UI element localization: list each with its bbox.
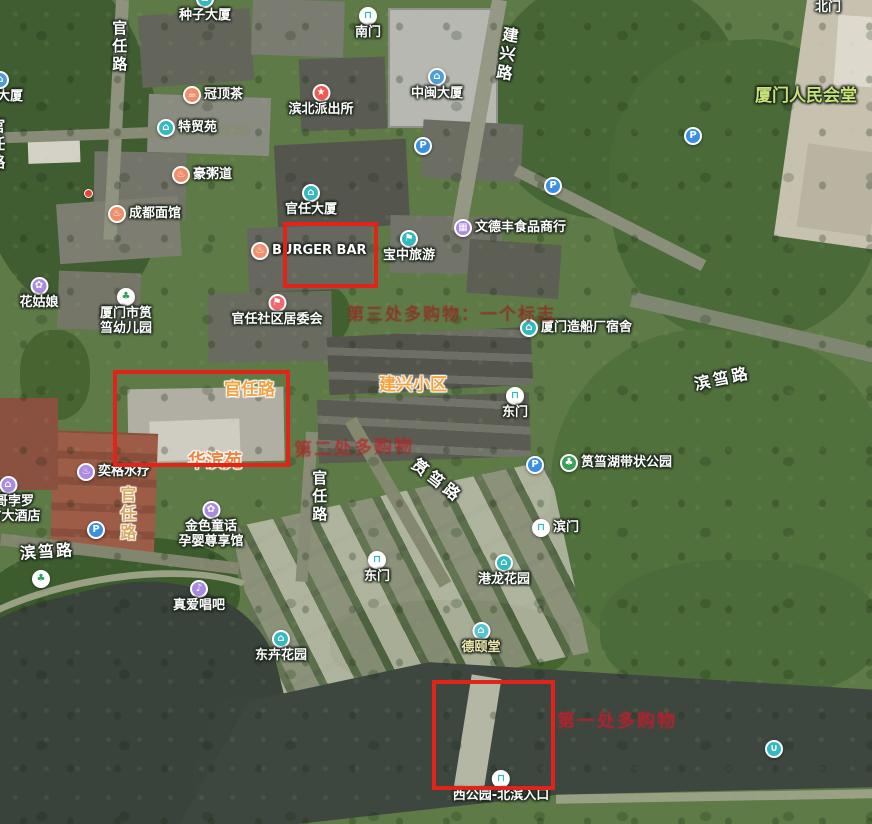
building-icon: ⌂ (157, 119, 175, 137)
poi-temao-yuan[interactable]: ⌂特贸苑 (157, 119, 217, 137)
satellite-map[interactable]: ⌂种子大厦⊓南门北门大厦⌂⌂中闽大厦☕冠顶茶★滨北派出所⌂特贸苑♨豪粥道♨成都面… (0, 0, 872, 824)
small-red-marker[interactable] (84, 189, 93, 198)
label-bindang-road-east[interactable]: 滨筜路 (693, 364, 753, 394)
label-guanren-road-vertical-south[interactable]: 官任路 (310, 470, 327, 524)
poi-label: 官任大厦 (285, 203, 337, 218)
poi-baozhong-travel[interactable]: ⚑宝中旅游 (383, 230, 435, 264)
store-icon: ▦ (454, 219, 472, 237)
building-icon: ⌂ (302, 184, 320, 202)
hotel-icon: ⌂ (0, 476, 17, 494)
label-guanren-road[interactable]: 官任路 (224, 381, 275, 401)
poi-label: 滨北派出所 (288, 103, 353, 118)
poi-label: 厦门市筼 筜幼儿园 (100, 307, 152, 337)
label-bindang-road-southwest[interactable]: 滨筜路 (19, 541, 74, 563)
poi-marco-polo-hotel[interactable]: ⌂马哥孛罗 东方大酒店 (0, 476, 41, 525)
poi-parking-3[interactable]: P (684, 127, 702, 145)
poi-shipyard-dormitory[interactable]: ⌂厦门造船厂宿舍 (520, 319, 632, 337)
poi-donghui-garden[interactable]: ⌂东卉花园 (255, 630, 307, 664)
poi-guandingcha-tea[interactable]: ☕冠顶茶 (183, 86, 243, 104)
poi-label: 东门 (364, 570, 390, 585)
music-icon: ♪ (190, 580, 208, 598)
poi-label: 特贸苑 (178, 121, 217, 136)
parking-icon: P (87, 521, 105, 539)
poi-label: 港龙花园 (478, 573, 530, 588)
parking-icon: P (544, 177, 562, 195)
poi-label: 滨筜路 (19, 541, 74, 563)
poi-label: 种子大厦 (179, 9, 231, 24)
poi-zhongzi-tower[interactable]: ⌂种子大厦 (179, 0, 231, 24)
poi-label: 筼筜湖带状公园 (581, 456, 672, 471)
poi-label: 宝中旅游 (383, 249, 435, 264)
building-icon: ⌂ (520, 319, 538, 337)
poi-zhenai-ktv[interactable]: ♪真爱唱吧 (173, 580, 225, 614)
poi-zhongmin-tower[interactable]: ⌂中闽大厦 (411, 68, 463, 102)
poi-chengdu-noodles[interactable]: ♨成都面馆 (108, 205, 181, 223)
poi-golden-fairytale-baby-store[interactable]: ✿金色童话 孕婴尊享馆 (178, 501, 243, 550)
poi-label: 豪粥道 (193, 168, 232, 183)
poi-label: BURGER BAR (272, 244, 367, 259)
police-icon: ★ (312, 84, 330, 102)
gate-icon: ⊓ (368, 551, 386, 569)
label-jianxing-road-vertical[interactable]: 建兴路 (492, 25, 519, 84)
poi-label: 成都面馆 (129, 207, 181, 222)
poi-label: 滨筜路 (693, 364, 753, 394)
poi-west-park-north-entrance[interactable]: ⊓西公园-北滨入口 (453, 770, 549, 804)
unknown-poi-icon: ∪ (765, 740, 783, 758)
poi-label: 大厦 (0, 90, 23, 105)
poi-label: 金色童话 孕婴尊享馆 (178, 520, 243, 550)
poi-east-gate-lower[interactable]: ⊓东门 (364, 551, 390, 585)
building-icon: ⌂ (272, 630, 290, 648)
poi-bin-gate[interactable]: ⊓滨门 (532, 519, 579, 537)
poi-parking-1[interactable]: P (414, 137, 432, 155)
poi-label: 奕格水疗 (98, 465, 150, 480)
poi-north-gate[interactable]: 北门 (815, 1, 841, 16)
label-jianxing-residential[interactable]: 建兴小区 (379, 376, 447, 396)
poi-label: 滨门 (553, 521, 579, 536)
poi-tower-icon-partial[interactable]: ⌂ (0, 71, 9, 89)
label-guanren-road-vertical-top[interactable]: 官任路 (110, 20, 127, 74)
poi-label: 中闽大厦 (411, 87, 463, 102)
poi-south-gate[interactable]: ⊓南门 (355, 7, 381, 41)
tree-icon: ♣ (117, 288, 135, 306)
poi-huaguniang-flower-shop[interactable]: ✿花姑娘 (19, 277, 58, 311)
building-icon: ⌂ (428, 68, 446, 86)
poi-label: 官任路 (224, 381, 275, 401)
burger-icon: ♨ (251, 242, 269, 260)
poi-parking-2[interactable]: P (544, 177, 562, 195)
poi-label: 官任社区居委会 (231, 313, 322, 328)
gate-icon: ⊓ (506, 387, 524, 405)
poi-deyitang[interactable]: ⌂德颐堂 (461, 622, 500, 656)
poi-label: 南门 (355, 26, 381, 41)
poi-label: 冠顶茶 (204, 88, 243, 103)
poi-label: 建兴小区 (379, 376, 447, 396)
poi-label: 马哥孛罗 东方大酒店 (0, 495, 41, 525)
restaurant-icon: ♨ (108, 205, 126, 223)
building-icon: ⌂ (495, 554, 513, 572)
poi-label: 真爱唱吧 (173, 599, 225, 614)
poi-haozhoudao-restaurant[interactable]: ♨豪粥道 (172, 166, 232, 184)
tree-icon: ♣ (32, 570, 50, 588)
travel-flag-icon: ⚑ (400, 230, 418, 248)
poi-binbei-police-station[interactable]: ★滨北派出所 (288, 84, 353, 118)
poi-yige-spa[interactable]: ♨奕格水疗 (77, 463, 150, 481)
poi-park-tree[interactable]: ♣ (32, 570, 50, 588)
poi-label: 东门 (502, 406, 528, 421)
poi-label: 厦门人民会堂 (755, 87, 857, 107)
poi-label: 文德丰食品商行 (475, 221, 566, 236)
poi-wendefeng-food-store[interactable]: ▦文德丰食品商行 (454, 219, 566, 237)
poi-label: 官任路 (110, 20, 127, 74)
gate-icon: ⊓ (532, 519, 550, 537)
gate-icon: ⊓ (492, 770, 510, 788)
parking-icon: P (414, 137, 432, 155)
poi-label: 北门 (815, 1, 841, 16)
baby-store-icon: ✿ (202, 501, 220, 519)
committee-flag-icon: ⚑ (268, 294, 286, 312)
poi-yundang-lake-park[interactable]: ♣筼筜湖带状公园 (560, 454, 672, 472)
poi-layer: ⌂种子大厦⊓南门北门大厦⌂⌂中闽大厦☕冠顶茶★滨北派出所⌂特贸苑♨豪粥道♨成都面… (0, 0, 872, 824)
building-icon: ⌂ (196, 0, 214, 8)
poi-label: 官任路 (0, 118, 5, 172)
parking-icon: P (684, 127, 702, 145)
label-huabin-yuan[interactable]: 华滨苑 (188, 452, 242, 473)
poi-waterside-unknown[interactable]: ∪ (765, 740, 783, 758)
red-dot-icon (84, 189, 93, 198)
building-icon: ⌂ (0, 71, 9, 89)
poi-yundang-kindergarten[interactable]: ♣厦门市筼 筜幼儿园 (100, 288, 152, 337)
poi-parking-4[interactable]: P (526, 456, 544, 474)
flower-icon: ✿ (30, 277, 48, 295)
gate-icon: ⊓ (359, 7, 377, 25)
label-road-left-edge[interactable]: 官任路 (0, 118, 5, 172)
poi-guanren-community-committee[interactable]: ⚑官任社区居委会 (231, 294, 322, 328)
park-leaf-icon: ♣ (560, 454, 578, 472)
poi-east-gate-upper[interactable]: ⊓东门 (502, 387, 528, 421)
poi-guanren-tower[interactable]: ⌂官任大厦 (285, 184, 337, 218)
poi-label: 德颐堂 (461, 641, 500, 656)
poi-ganglong-garden[interactable]: ⌂港龙花园 (478, 554, 530, 588)
poi-label: 厦门造船厂宿舍 (541, 321, 632, 336)
label-yundang-road[interactable]: 筼筜路 (408, 455, 467, 506)
poi-label: 筼筜路 (408, 455, 467, 506)
poi-tower-partial[interactable]: 大厦 (0, 90, 23, 105)
poi-label: 建兴路 (492, 25, 519, 84)
label-guanren-road-vertical-mid[interactable]: 官任路 (117, 486, 135, 543)
poi-burger-bar[interactable]: ♨BURGER BAR (251, 242, 367, 260)
label-renmin-huitang[interactable]: 厦门人民会堂 (755, 87, 857, 107)
parking-icon: P (526, 456, 544, 474)
hall-icon: ⌂ (472, 622, 490, 640)
poi-label: 官任路 (310, 470, 327, 524)
spa-icon: ♨ (77, 463, 95, 481)
tea-icon: ☕ (183, 86, 201, 104)
poi-label: 华滨苑 (188, 452, 242, 473)
poi-label: 花姑娘 (19, 296, 58, 311)
poi-label: 东卉花园 (255, 649, 307, 664)
poi-label: 西公园-北滨入口 (453, 789, 549, 804)
poi-parking-5[interactable]: P (87, 521, 105, 539)
restaurant-icon: ♨ (172, 166, 190, 184)
poi-label: 官任路 (117, 486, 135, 543)
